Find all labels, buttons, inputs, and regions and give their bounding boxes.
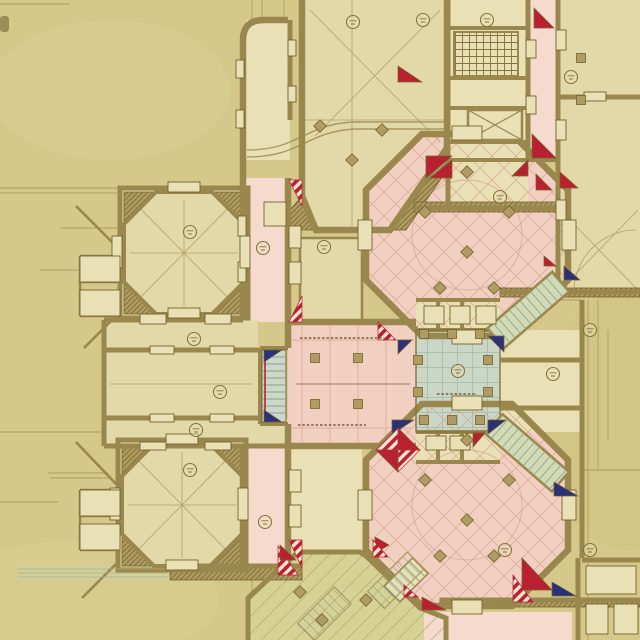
pier-square: [577, 96, 586, 105]
wall-niche: [556, 30, 566, 50]
room-number-badge: [452, 365, 465, 378]
wall-niche: [80, 524, 120, 550]
room-number-badge: [257, 242, 270, 255]
wall-niche: [289, 505, 301, 527]
room-number-badge: [318, 241, 331, 254]
west-corridor-upper: [104, 320, 258, 350]
wall-niche: [426, 436, 446, 450]
pier-square: [484, 356, 493, 365]
room-number-badge: [584, 544, 597, 557]
wall-niche: [205, 442, 231, 450]
room-number-badge: [499, 544, 512, 557]
wall-niche: [358, 220, 372, 250]
wall-niche: [168, 308, 200, 318]
wall-niche: [452, 126, 482, 140]
wall-niche: [450, 306, 470, 324]
wall-niche: [584, 92, 606, 101]
wall-niche: [289, 262, 301, 284]
pier-square: [354, 400, 363, 409]
room-number-badge: [347, 16, 360, 29]
wall-niche: [80, 290, 120, 316]
wall-niche: [80, 490, 120, 516]
wall-niche: [80, 256, 120, 282]
room-number-badge: [494, 191, 507, 204]
wall-niche: [150, 414, 174, 422]
wall-niche: [556, 120, 566, 140]
room-number-badge: [565, 71, 578, 84]
wall-niche: [210, 346, 234, 354]
room-number-badge: [184, 464, 197, 477]
room-number-badge: [214, 386, 227, 399]
wall-niche: [476, 306, 496, 324]
wall-niche: [168, 182, 200, 192]
wall-niche: [264, 202, 286, 226]
pier-square: [414, 356, 423, 365]
wall-niche: [424, 306, 444, 324]
wall-niche: [586, 604, 608, 634]
anteroom: [300, 238, 362, 322]
pier-square: [448, 416, 457, 425]
wall-niche: [358, 490, 372, 520]
room-number-badge: [190, 424, 203, 437]
wall-niche: [289, 470, 301, 492]
room-number-badge: [584, 324, 597, 337]
wall-niche: [236, 60, 244, 78]
wall-niche: [526, 96, 536, 114]
wall-niche: [150, 346, 174, 354]
wall-niche: [288, 40, 296, 56]
pier-square: [577, 54, 586, 63]
wall-niche: [140, 314, 166, 324]
pier-square: [448, 330, 457, 339]
wall-niche: [205, 314, 231, 324]
pier-square: [420, 330, 429, 339]
floor-plan-svg: [0, 0, 640, 640]
wall-niche: [236, 110, 244, 128]
wall-niche: [562, 220, 576, 250]
room-number-badge: [481, 14, 494, 27]
wall-niche: [210, 414, 234, 422]
wall-niche: [238, 488, 248, 520]
ink-blot: [0, 16, 9, 32]
room-number-badge: [188, 333, 201, 346]
wall-niche: [556, 200, 566, 220]
wall-niche: [452, 396, 482, 410]
wall-niche: [289, 226, 301, 248]
room-number-badge: [547, 368, 560, 381]
pier-square: [311, 400, 320, 409]
wall-niche: [288, 86, 296, 102]
pier-square: [420, 416, 429, 425]
wall-niche: [238, 216, 246, 236]
wall-niche: [140, 442, 166, 450]
floor-plan-drawing: [0, 0, 640, 640]
pier-square: [311, 354, 320, 363]
pier-square: [476, 416, 485, 425]
room-number-badge: [259, 516, 272, 529]
grid-stair: [454, 32, 518, 76]
north-corridor: [246, 20, 290, 160]
pier-square: [354, 354, 363, 363]
wall-niche: [526, 40, 536, 58]
room-number-badge: [184, 226, 197, 239]
wall-niche: [166, 560, 198, 570]
wall-niche: [586, 566, 636, 594]
wall-niche: [452, 600, 482, 614]
pier-square: [476, 330, 485, 339]
pier-square: [484, 388, 493, 397]
room-number-badge: [417, 14, 430, 27]
wall-niche: [614, 604, 638, 634]
wall-niche: [240, 236, 250, 268]
pier-square: [414, 388, 423, 397]
